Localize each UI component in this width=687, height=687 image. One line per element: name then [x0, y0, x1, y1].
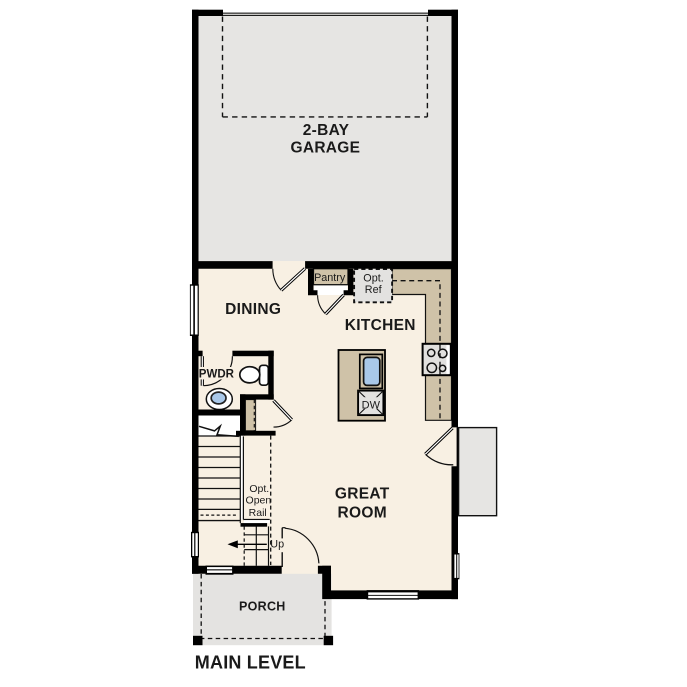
svg-text:Rail: Rail — [249, 507, 267, 519]
svg-text:DW: DW — [362, 399, 381, 411]
svg-text:GREAT: GREAT — [335, 486, 390, 503]
svg-text:PORCH: PORCH — [239, 599, 286, 613]
svg-text:DINING: DINING — [225, 301, 281, 318]
svg-text:Ref: Ref — [365, 284, 383, 296]
svg-text:2-BAY: 2-BAY — [303, 122, 350, 139]
svg-text:Opt.: Opt. — [363, 272, 383, 284]
svg-text:ROOM: ROOM — [337, 505, 386, 522]
svg-text:Pantry: Pantry — [314, 272, 346, 284]
svg-text:KITCHEN: KITCHEN — [345, 317, 416, 334]
svg-text:PWDR: PWDR — [199, 368, 235, 380]
svg-text:Up: Up — [270, 539, 284, 551]
svg-text:Open: Open — [246, 495, 272, 507]
svg-text:GARAGE: GARAGE — [290, 140, 360, 157]
svg-text:MAIN LEVEL: MAIN LEVEL — [195, 652, 306, 672]
svg-text:Opt.: Opt. — [249, 483, 269, 495]
